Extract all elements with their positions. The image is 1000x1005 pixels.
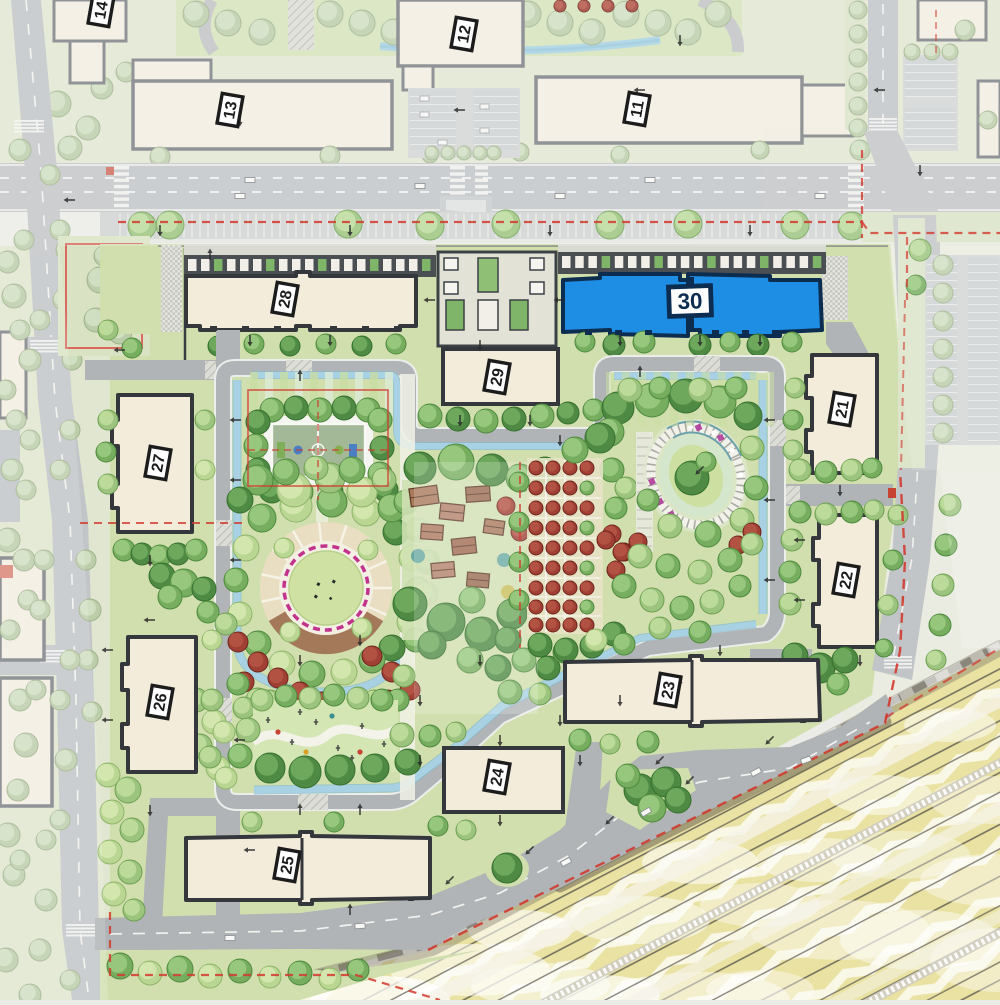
svg-text:23: 23 [659,680,679,701]
svg-text:13: 13 [221,100,241,121]
svg-text:25: 25 [278,855,298,876]
svg-text:12: 12 [455,24,475,45]
svg-text:29: 29 [488,367,508,388]
svg-text:22: 22 [837,570,857,591]
svg-text:24: 24 [488,767,508,788]
svg-text:11: 11 [628,99,648,119]
svg-text:14: 14 [92,0,112,20]
svg-text:28: 28 [276,289,296,310]
svg-text:27: 27 [149,453,169,474]
svg-text:21: 21 [833,399,853,420]
svg-text:26: 26 [151,692,171,713]
svg-text:30: 30 [677,288,703,314]
